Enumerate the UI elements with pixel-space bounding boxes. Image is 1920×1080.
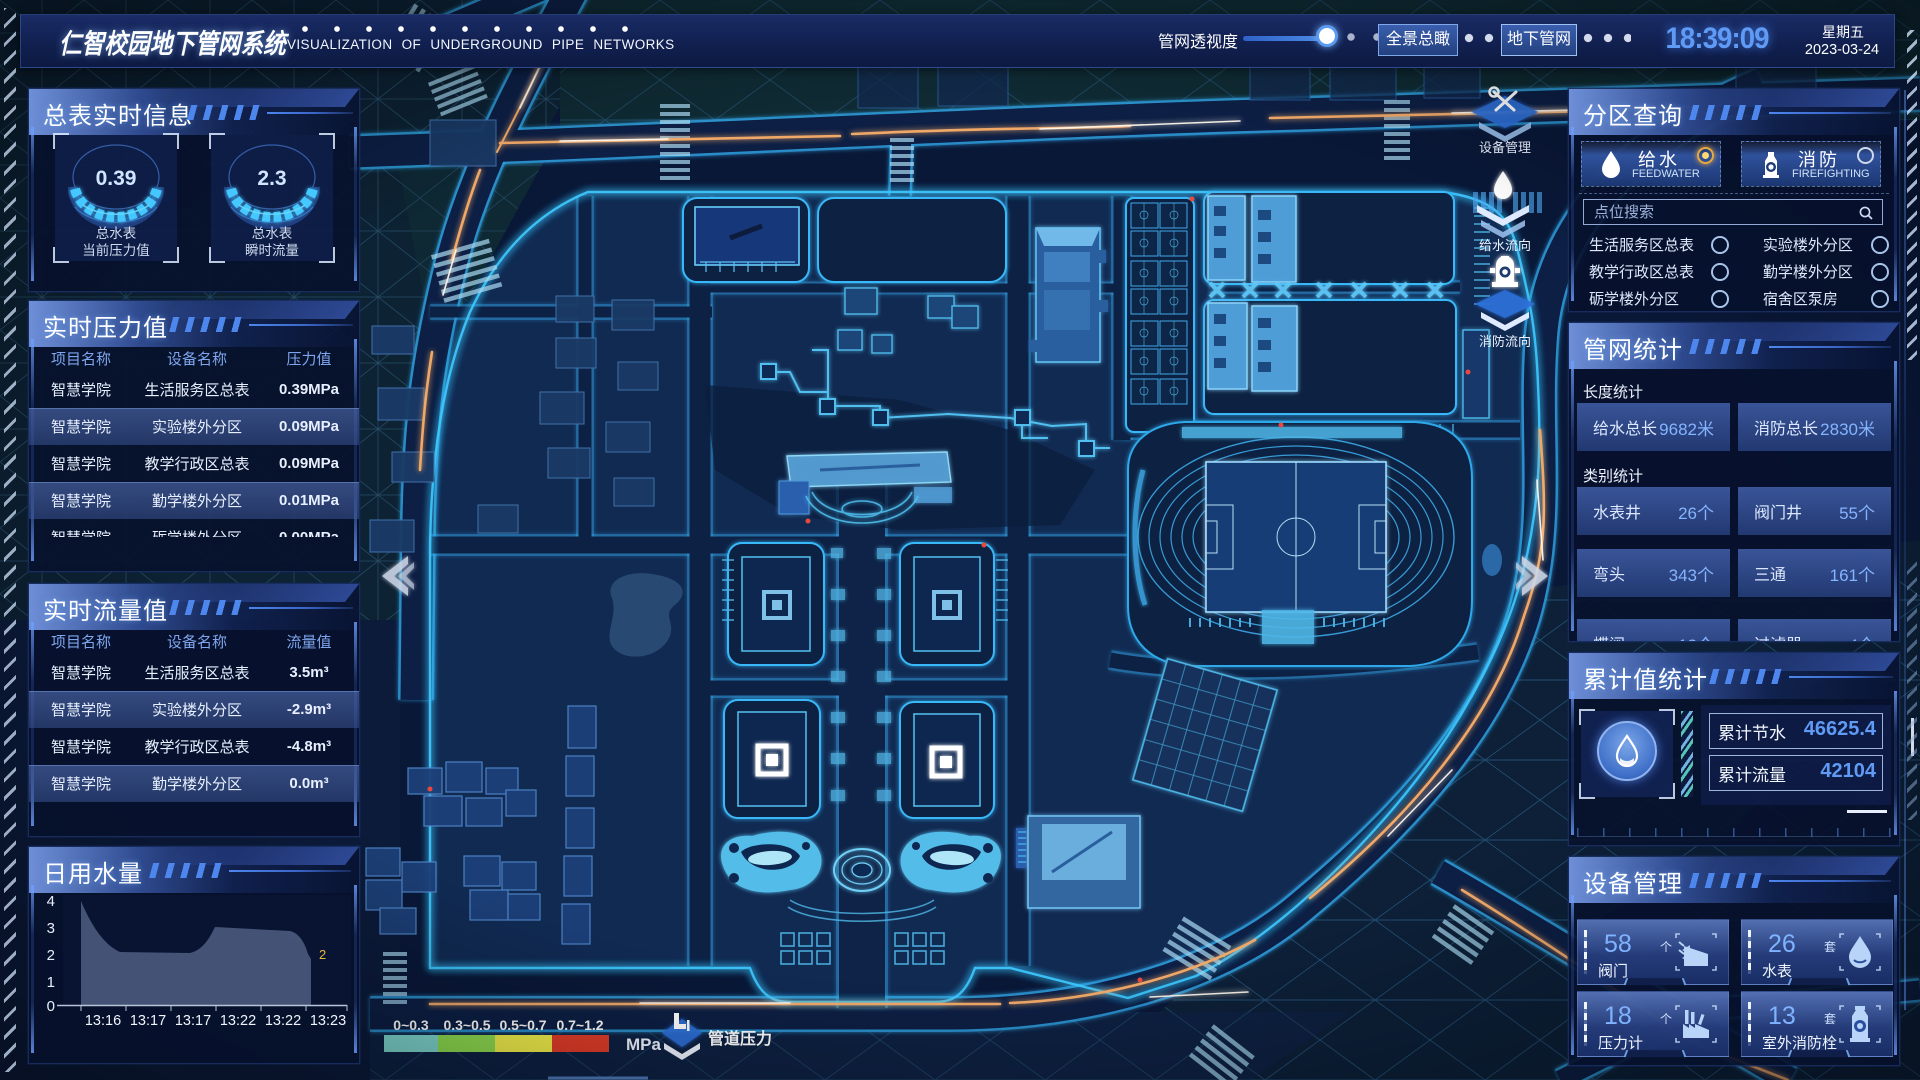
svg-text:2: 2 (47, 947, 55, 964)
svg-text:13:17: 13:17 (130, 1013, 166, 1029)
svg-text:13:16: 13:16 (85, 1013, 121, 1029)
svg-text:13:23: 13:23 (310, 1013, 346, 1029)
svg-text:0.39: 0.39 (96, 167, 137, 190)
svg-text:0: 0 (47, 998, 55, 1015)
svg-text:13:22: 13:22 (265, 1013, 301, 1029)
svg-text:13:17: 13:17 (175, 1013, 211, 1029)
svg-text:2.3: 2.3 (257, 167, 286, 190)
svg-text:1: 1 (47, 974, 55, 991)
svg-text:3: 3 (47, 920, 55, 937)
svg-text:2: 2 (319, 947, 326, 962)
svg-text:4: 4 (47, 893, 55, 910)
svg-text:13:22: 13:22 (220, 1013, 256, 1029)
